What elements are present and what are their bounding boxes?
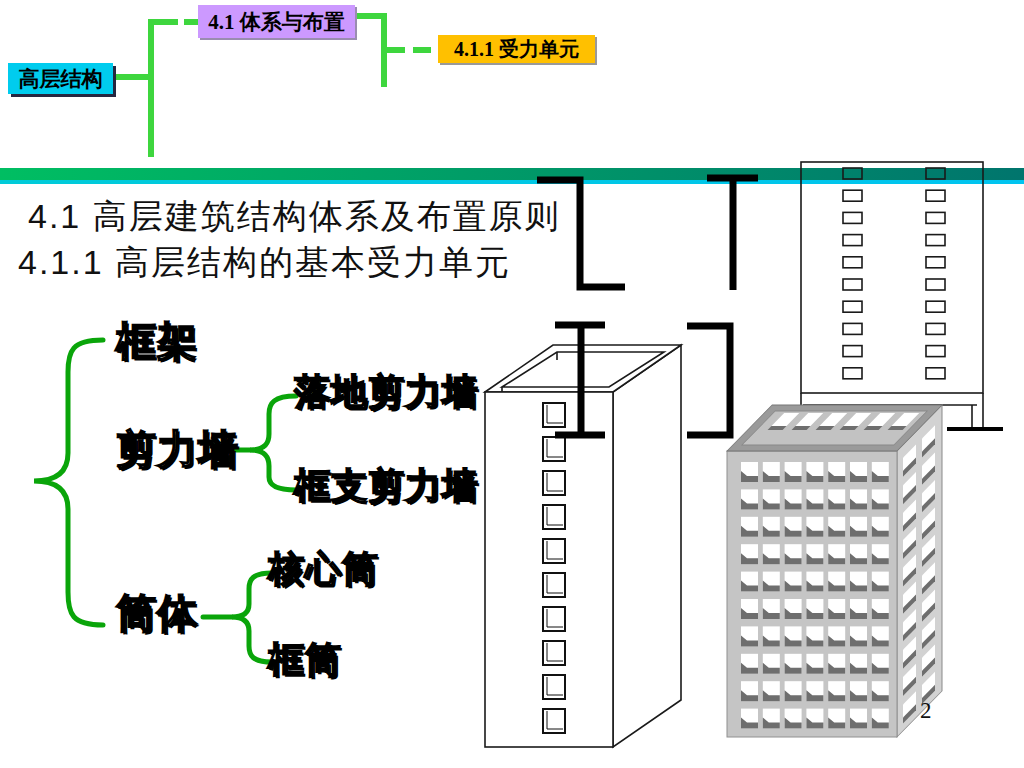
taxonomy-item-core-tube: 核心筒 — [268, 549, 379, 589]
tube-right-face — [613, 345, 681, 747]
taxonomy-item-frame: 框架 — [116, 320, 198, 364]
window-opening — [926, 168, 945, 179]
taxonomy-item-tube: 筒体 — [116, 592, 198, 636]
window-opening — [843, 235, 862, 246]
window-opening — [926, 235, 945, 246]
window-opening — [926, 346, 945, 357]
taxonomy-item-frame-supported-shearwall: 框支剪力墙 — [294, 466, 479, 506]
section-title: 4.1 高层建筑结构体系及布置原则 — [28, 194, 561, 240]
connector-child — [355, 16, 384, 87]
elevation-outline — [801, 162, 983, 393]
taxonomy-item-shearwall: 剪力墙 — [116, 428, 239, 472]
org-box-root: 高层结构 — [8, 63, 113, 94]
window-opening — [926, 212, 945, 223]
org-box-subsection: 4.1.1 受力单元 — [438, 35, 595, 63]
connector-trunk — [151, 22, 178, 157]
vector-layer — [0, 0, 1024, 768]
window-opening — [843, 212, 862, 223]
org-box-subsection-label: 4.1.1 受力单元 — [454, 36, 579, 63]
window-opening — [843, 346, 862, 357]
window-opening — [926, 279, 945, 290]
framed-tube-side-face — [897, 405, 942, 737]
org-box-section: 4.1 体系与布置 — [198, 5, 355, 38]
window-opening — [843, 323, 862, 334]
window-opening — [843, 257, 862, 268]
framed-tube-building-drawing — [727, 405, 942, 737]
window-opening — [926, 368, 945, 379]
window-opening — [843, 168, 862, 179]
elevation-windows — [843, 168, 945, 379]
taxonomy-item-frame-tube: 框筒 — [268, 640, 342, 680]
window-opening — [843, 368, 862, 379]
window-opening — [926, 323, 945, 334]
window-opening — [926, 257, 945, 268]
window-opening — [926, 301, 945, 312]
window-opening — [843, 301, 862, 312]
subsection-title: 4.1.1 高层结构的基本受力单元 — [18, 240, 511, 286]
window-opening — [926, 190, 945, 201]
t-section-symbol — [707, 176, 758, 290]
taxonomy-item-ground-shearwall: 落地剪力墙 — [294, 372, 479, 412]
slide: 高层结构 4.1 体系与布置 4.1.1 受力单元 4.1 高层建筑结构体系及布… — [0, 0, 1024, 768]
tube-brace — [232, 573, 272, 662]
main-brace — [34, 340, 103, 625]
shearwall-brace — [250, 396, 296, 490]
page-number: 2 — [920, 698, 932, 724]
window-opening — [843, 279, 862, 290]
building-elevation-drawing — [801, 162, 1003, 430]
window-opening — [843, 190, 862, 201]
org-box-section-label: 4.1 体系与布置 — [208, 8, 345, 36]
org-box-root-label: 高层结构 — [19, 65, 103, 93]
channel-section-symbol — [687, 326, 730, 435]
